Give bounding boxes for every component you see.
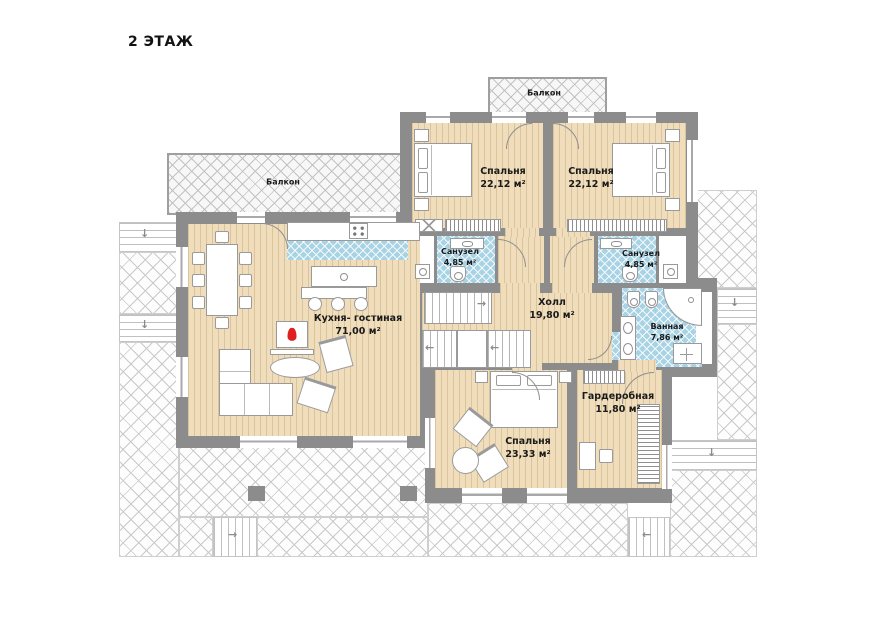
corner-sofa — [219, 383, 293, 416]
window — [240, 436, 297, 448]
roof-right-bottom — [670, 470, 757, 557]
stairs-arrow: → — [477, 298, 486, 309]
closet-rail — [445, 219, 501, 232]
coffee-table — [270, 357, 320, 378]
roof-left-2 — [119, 342, 179, 557]
door-gap — [552, 283, 592, 293]
closet-rail — [567, 219, 667, 232]
bed — [612, 143, 670, 197]
kitchen-tile-floor — [287, 241, 408, 260]
bar-stool — [354, 297, 368, 311]
double-sink — [620, 316, 636, 360]
dining-chair — [192, 274, 205, 287]
nightstand — [665, 198, 680, 211]
slope-arrow: ↓ — [707, 447, 716, 458]
window — [626, 112, 656, 123]
balcony-door-left — [237, 212, 265, 223]
dining-chair — [239, 252, 252, 265]
toilet — [627, 291, 640, 308]
bathroom-label: Ванная7,86 м² — [650, 322, 683, 344]
dining-chair — [192, 252, 205, 265]
door-gap — [500, 283, 540, 293]
terrace-post — [248, 486, 265, 501]
bedroom3-label: Спальня23,33 м² — [505, 436, 551, 462]
bedroom1-label: Спальня22,12 м² — [480, 166, 526, 192]
floor-plan: ↓ ↓ → ← ↓ ↓ → ← — [0, 0, 883, 631]
dining-chair — [192, 296, 205, 309]
door-gap — [505, 228, 539, 237]
bedroom2-label: Спальня22,12 м² — [568, 166, 614, 192]
pedestal-sink — [663, 264, 678, 279]
balcony-door-top — [492, 112, 526, 123]
window — [176, 357, 188, 397]
bed — [414, 143, 472, 197]
washer — [673, 343, 702, 364]
dining-chair — [215, 317, 229, 329]
desk-chair — [599, 449, 613, 463]
bar-stool — [308, 297, 322, 311]
terrace-band-1 — [179, 517, 213, 557]
wardrobe-label: Гардеробная11,80 м² — [582, 391, 654, 417]
kitchen-living-label: Кухня- гостиная71,00 м² — [314, 313, 402, 339]
dining-table — [206, 244, 238, 316]
balcony-left-label: Балкон — [266, 178, 300, 189]
stairs-landing — [457, 330, 487, 368]
stairs-arrow: ← — [490, 342, 499, 353]
window — [176, 247, 188, 287]
terrace-band-2 — [257, 517, 428, 557]
sink — [600, 238, 632, 249]
round-table — [452, 447, 479, 474]
fireplace-hearth — [270, 349, 314, 355]
window — [426, 112, 450, 123]
terrace-main — [179, 447, 428, 517]
stove — [349, 223, 368, 239]
terrace-band-3 — [428, 503, 628, 557]
pedestal-sink — [415, 264, 430, 279]
slope-arrow: ↓ — [140, 319, 149, 330]
nightstand — [414, 129, 429, 142]
dining-chair — [239, 274, 252, 287]
window — [425, 418, 435, 468]
bar-stool — [331, 297, 345, 311]
roof-right-top — [690, 190, 757, 288]
window — [462, 488, 502, 503]
window — [687, 140, 698, 202]
slope-arrow: ↓ — [730, 297, 739, 308]
window — [527, 488, 567, 503]
slope-arrow: ← — [642, 529, 651, 540]
nightstand — [414, 198, 429, 211]
slope-arrow: ↓ — [140, 228, 149, 239]
nightstand — [475, 371, 488, 383]
roof-left-1 — [119, 252, 179, 314]
balcony-top-label: Балкон — [527, 89, 561, 100]
flame-icon — [288, 327, 297, 340]
fireplace — [276, 321, 308, 348]
dining-chair — [215, 231, 229, 243]
page-title: 2 ЭТАЖ — [128, 34, 193, 50]
terrace-post — [400, 486, 417, 501]
desk — [579, 442, 596, 470]
stairs-arrow: ← — [425, 342, 434, 353]
sanuzel1-label: Санузел4,85 м² — [441, 247, 479, 269]
hall-label: Холл19,80 м² — [529, 297, 574, 323]
sanuzel2-label: Санузел4,85 м² — [622, 249, 660, 271]
nightstand — [559, 371, 572, 383]
dining-chair — [239, 296, 252, 309]
clothes-rail — [583, 370, 625, 384]
window — [568, 112, 594, 123]
vestibule-divider-wall — [544, 236, 550, 283]
nightstand — [665, 129, 680, 142]
kitchen-island — [311, 266, 377, 287]
roof-right-mid — [717, 324, 757, 440]
window — [662, 445, 672, 489]
slope-arrow: → — [228, 529, 237, 540]
window — [353, 436, 407, 448]
bidet — [645, 291, 658, 308]
